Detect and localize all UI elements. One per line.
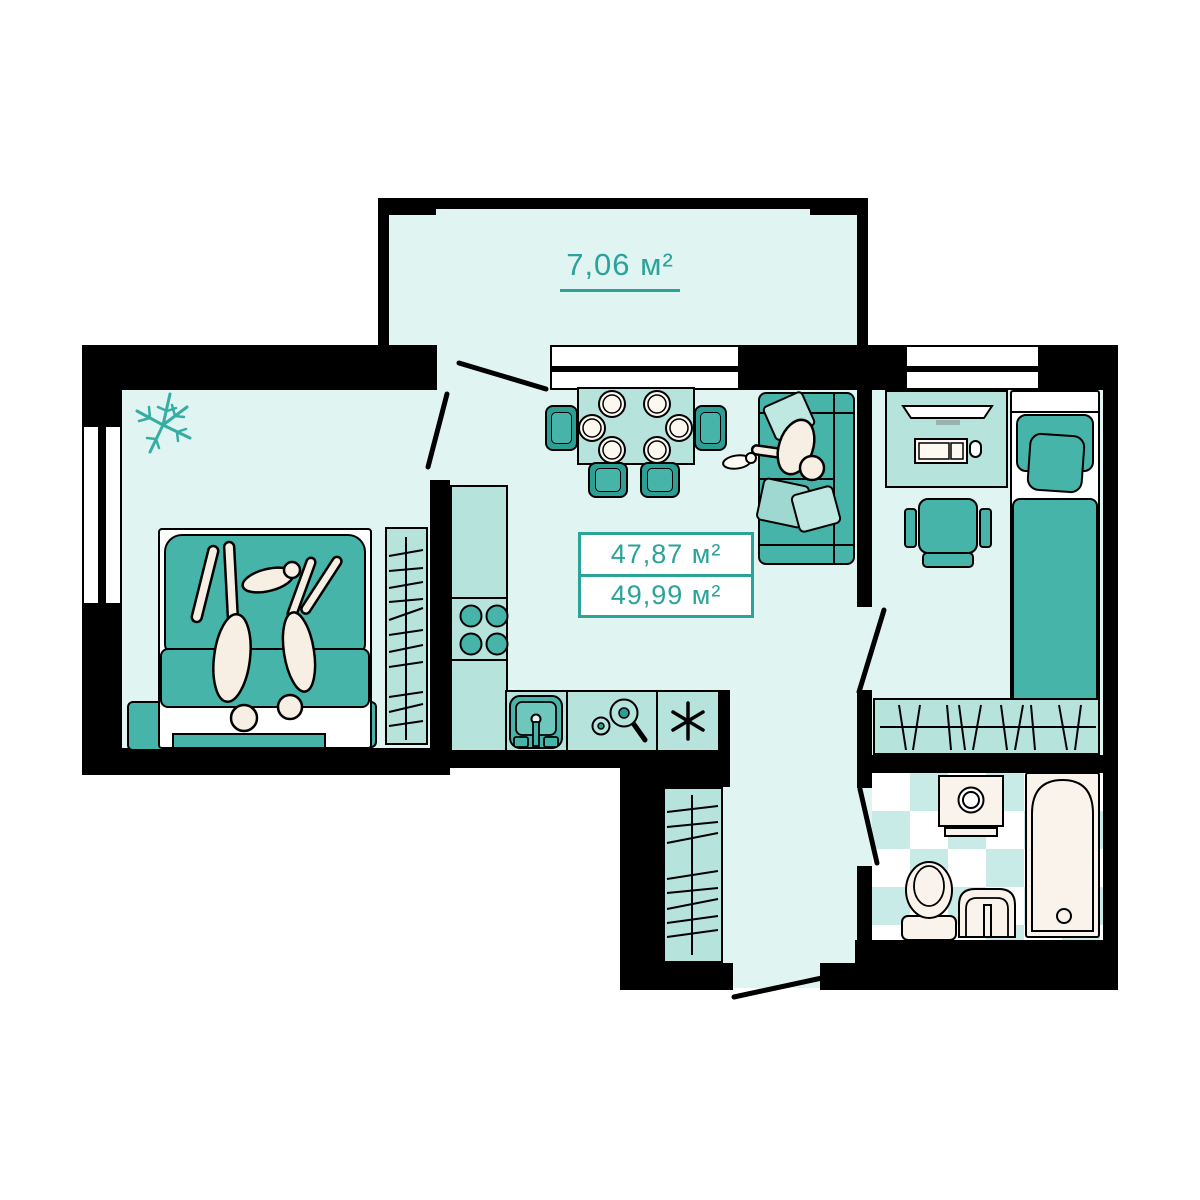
living-area-value: 47,87 м² bbox=[581, 535, 751, 574]
kitchen-tall-cabinet bbox=[450, 485, 508, 752]
wall-top-left bbox=[82, 345, 437, 390]
wall-bathroom-left-upper bbox=[857, 690, 872, 788]
wardrobe-bedroom-left bbox=[385, 527, 428, 745]
wall-balcony-left bbox=[378, 198, 389, 345]
sofa bbox=[758, 392, 855, 565]
dining-chair-bottom-2 bbox=[640, 462, 680, 498]
wall-bathroom-bottom bbox=[855, 940, 1118, 990]
desk-chair-armrest-left bbox=[904, 508, 917, 548]
wall-balcony-top bbox=[378, 198, 868, 209]
kitchen-counter bbox=[505, 690, 720, 752]
wall-living-bedroom-right bbox=[857, 390, 872, 607]
window-mullion bbox=[552, 366, 738, 372]
dining-chair-right bbox=[694, 405, 727, 451]
desk bbox=[885, 390, 1008, 488]
window-bedroom-left bbox=[82, 425, 122, 605]
hallway-floor bbox=[723, 755, 857, 988]
washing-machine bbox=[938, 775, 1004, 827]
wall-hallway-header bbox=[620, 750, 730, 787]
window-mullion bbox=[98, 427, 106, 603]
wall-entry-right bbox=[820, 963, 857, 990]
total-area-value: 49,99 м² bbox=[581, 574, 751, 616]
wardrobe-bedroom-right bbox=[873, 698, 1100, 755]
double-bed-pillow bbox=[164, 534, 366, 656]
dining-table bbox=[577, 387, 695, 465]
balcony-area-value: 7,06 м² bbox=[560, 247, 680, 292]
wall-bedroom-bathroom-divider bbox=[872, 755, 1103, 773]
wall-bedroom-kitchen bbox=[430, 480, 450, 775]
double-bed-blanket bbox=[160, 648, 370, 708]
wall-right-exterior bbox=[1103, 345, 1118, 940]
bedroom-right-door-opening bbox=[857, 607, 872, 690]
wardrobe-hallway bbox=[663, 787, 723, 963]
desk-chair-armrest-right bbox=[979, 508, 992, 548]
bathtub bbox=[1025, 772, 1100, 938]
desk-chair-base bbox=[922, 552, 974, 568]
wall-bathroom-left-lower bbox=[857, 866, 872, 940]
area-summary-box: 47,87 м² 49,99 м² bbox=[578, 532, 754, 618]
wall-balcony-right bbox=[857, 198, 868, 345]
window-bedroom-right bbox=[905, 345, 1040, 390]
window-mullion bbox=[907, 366, 1038, 372]
floor-plan: 7,06 м² 47,87 м² 49,99 м² bbox=[0, 0, 1200, 1200]
dining-chair-bottom-1 bbox=[588, 462, 628, 498]
window-balcony-living bbox=[550, 345, 740, 390]
bathroom-door-opening bbox=[857, 788, 872, 866]
double-bed-footboard bbox=[172, 733, 326, 749]
balcony-area-label: 7,06 м² bbox=[535, 247, 705, 292]
single-bed-pillow-small bbox=[1026, 432, 1086, 494]
desk-chair-seat bbox=[918, 498, 978, 554]
washing-machine-panel bbox=[944, 827, 998, 837]
wall-bottom-bedroom-left bbox=[82, 748, 450, 775]
wall-top-middle bbox=[740, 345, 905, 390]
balcony-door-opening bbox=[437, 345, 550, 390]
dining-chair-left bbox=[545, 405, 578, 451]
wall-entry-left bbox=[620, 963, 733, 990]
